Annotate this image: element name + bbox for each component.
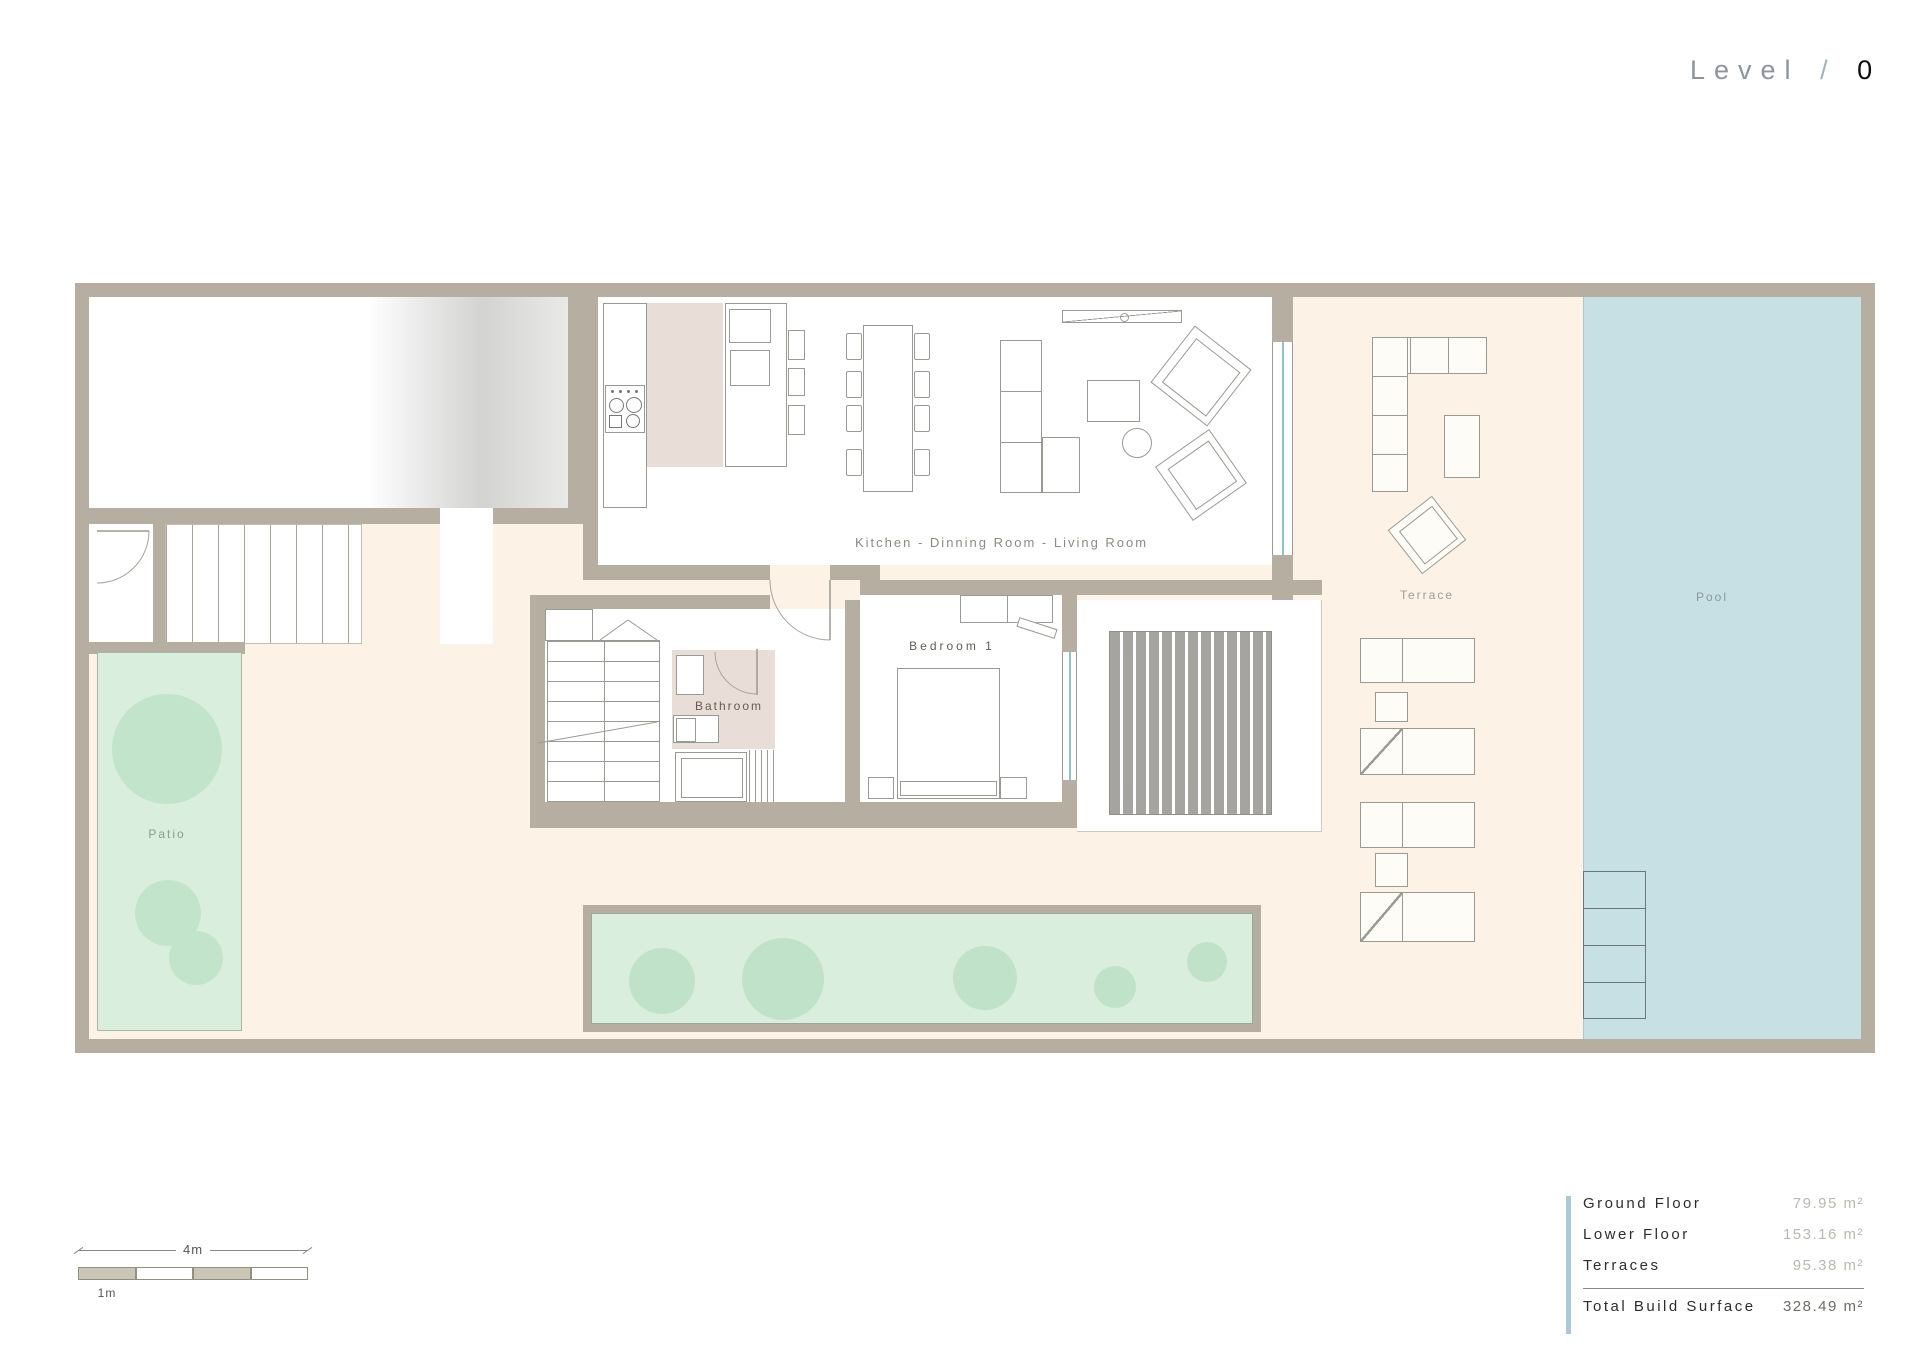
- tv-unit: [1062, 310, 1182, 323]
- row-value: 95.38 m²: [1793, 1257, 1864, 1274]
- sun-lounger: [1360, 638, 1475, 683]
- cooktop: [605, 385, 645, 433]
- wall: [568, 297, 583, 512]
- table-accent-bar: [1566, 1196, 1571, 1334]
- burner: [626, 414, 640, 428]
- tree: [112, 694, 222, 804]
- row-label: Ground Floor: [1583, 1195, 1701, 1212]
- plant-circle: [629, 948, 695, 1014]
- burner: [626, 397, 642, 413]
- dining-chair: [846, 333, 862, 360]
- bathroom-sink: [676, 655, 704, 695]
- entry-room: [89, 524, 153, 642]
- total-value: 328.49 m²: [1783, 1298, 1864, 1315]
- window-glass: [1282, 342, 1284, 555]
- wall: [530, 595, 770, 609]
- scale-segments: [78, 1267, 308, 1280]
- shower: [675, 752, 747, 802]
- tv-speaker: [1120, 313, 1129, 322]
- row-value: 79.95 m²: [1793, 1195, 1864, 1212]
- dining-chair: [914, 449, 930, 476]
- sun-lounger: [1360, 892, 1475, 942]
- planter: [583, 905, 1261, 1032]
- stairs-upper-room: [545, 609, 593, 641]
- title-level-text: Level: [1690, 55, 1800, 85]
- sink-basin: [609, 415, 622, 428]
- wall: [530, 802, 1077, 828]
- plant-circle: [1094, 966, 1136, 1008]
- kitchen-island: [725, 303, 787, 467]
- toilet-tank: [676, 718, 696, 742]
- room-label-bedroom: Bedroom 1: [882, 639, 1022, 653]
- wall: [493, 508, 583, 524]
- row-label: Terraces: [1583, 1257, 1661, 1274]
- scale-total-label: 4m: [176, 1242, 210, 1257]
- dining-chair: [914, 333, 930, 360]
- dining-chair: [846, 371, 862, 398]
- closet-divider: [1007, 596, 1008, 622]
- title-separator: /: [1816, 55, 1841, 85]
- room-label-terrace: Terrace: [1367, 588, 1487, 602]
- title-level-number: 0: [1857, 55, 1881, 85]
- dining-table: [863, 325, 913, 492]
- sun-lounger: [1360, 802, 1475, 848]
- stair-rail: [604, 641, 605, 801]
- wall: [1062, 595, 1077, 652]
- nightstand: [1000, 777, 1027, 799]
- side-table-round: [1122, 428, 1152, 458]
- lounger-backrest: [1361, 729, 1402, 774]
- sun-lounger: [1360, 728, 1475, 775]
- lounger-divider: [1402, 729, 1403, 774]
- page-title: Level / 0: [1690, 55, 1910, 86]
- table-row: Ground Floor 79.95 m²: [1583, 1195, 1864, 1212]
- outdoor-table: [1444, 415, 1480, 478]
- kitchen-floor: [647, 303, 723, 467]
- lounger-side-table: [1375, 692, 1408, 722]
- coffee-table: [1087, 380, 1140, 422]
- outdoor-chair: [1388, 496, 1467, 575]
- scale-bar: 4m 1m: [78, 1241, 308, 1303]
- scale-segment: [193, 1267, 251, 1280]
- bed-footer: [900, 781, 997, 796]
- oven: [729, 309, 771, 343]
- wall: [845, 600, 860, 802]
- bar-stool: [788, 405, 805, 435]
- sofa: [1000, 340, 1042, 493]
- louvre-screen: [749, 750, 775, 802]
- wall: [583, 297, 598, 580]
- cooktop-knobs: [611, 390, 614, 393]
- table-row: Terraces 95.38 m²: [1583, 1257, 1864, 1274]
- lounger-backrest: [1361, 893, 1402, 941]
- window: [1272, 342, 1293, 555]
- pool-steps: [1583, 871, 1646, 1019]
- corridor: [440, 508, 493, 644]
- tree: [169, 931, 223, 985]
- lounger-divider: [1402, 893, 1403, 941]
- scale-segment: [251, 1267, 309, 1280]
- outdoor-sofa: [1372, 337, 1408, 492]
- table-total-row: Total Build Surface 328.49 m²: [1583, 1298, 1864, 1315]
- dining-chair: [846, 449, 862, 476]
- table-row: Lower Floor 153.16 m²: [1583, 1226, 1864, 1243]
- nightstand: [868, 777, 894, 799]
- garage-area: [89, 297, 568, 508]
- shower-tray: [681, 758, 743, 798]
- bar-stool: [788, 368, 805, 396]
- area-table: Ground Floor 79.95 m² Lower Floor 153.16…: [1566, 1192, 1864, 1340]
- island-sink: [730, 350, 770, 386]
- lounger-divider: [1402, 639, 1403, 682]
- plant-circle: [742, 938, 824, 1020]
- plant-circle: [953, 946, 1017, 1010]
- window: [1062, 652, 1077, 780]
- row-label: Lower Floor: [1583, 1226, 1690, 1243]
- exterior-stairs: [165, 524, 362, 644]
- wall: [1272, 297, 1293, 342]
- lounger-divider: [1402, 803, 1403, 847]
- plant-circle: [1187, 942, 1227, 982]
- wall: [89, 508, 440, 524]
- room-label-pool: Pool: [1652, 590, 1772, 604]
- room-label-kitchen: Kitchen - Dinning Room - Living Room: [855, 535, 1055, 550]
- sofa-chaise: [1042, 437, 1080, 493]
- floor-plan: Patio Bathroom Bedroom: [75, 283, 1875, 1053]
- wall: [583, 565, 770, 580]
- striped-deck: [1109, 631, 1272, 815]
- bed: [897, 668, 1000, 799]
- wall: [830, 565, 880, 580]
- wall: [1062, 780, 1077, 802]
- scale-unit-label: 1m: [98, 1286, 117, 1300]
- lounger-side-table: [1375, 853, 1408, 887]
- outdoor-chair-seat: [1399, 506, 1458, 565]
- dining-chair: [914, 405, 930, 432]
- wall: [530, 595, 545, 815]
- wall: [860, 580, 1322, 595]
- room-label-bathroom: Bathroom: [679, 699, 779, 713]
- table-divider: [1583, 1288, 1864, 1289]
- window-glass: [1069, 652, 1071, 780]
- row-value: 153.16 m²: [1783, 1226, 1864, 1243]
- interior-stairs: [547, 640, 660, 802]
- room-label-patio: Patio: [107, 827, 227, 841]
- total-label: Total Build Surface: [1583, 1298, 1756, 1315]
- wall: [153, 524, 165, 646]
- scale-segment: [78, 1267, 136, 1280]
- dining-chair: [914, 371, 930, 398]
- dining-chair: [846, 405, 862, 432]
- bar-stool: [788, 330, 805, 360]
- burner: [609, 398, 624, 413]
- scale-segment: [136, 1267, 194, 1280]
- closet: [960, 595, 1053, 623]
- toilet: [673, 715, 719, 743]
